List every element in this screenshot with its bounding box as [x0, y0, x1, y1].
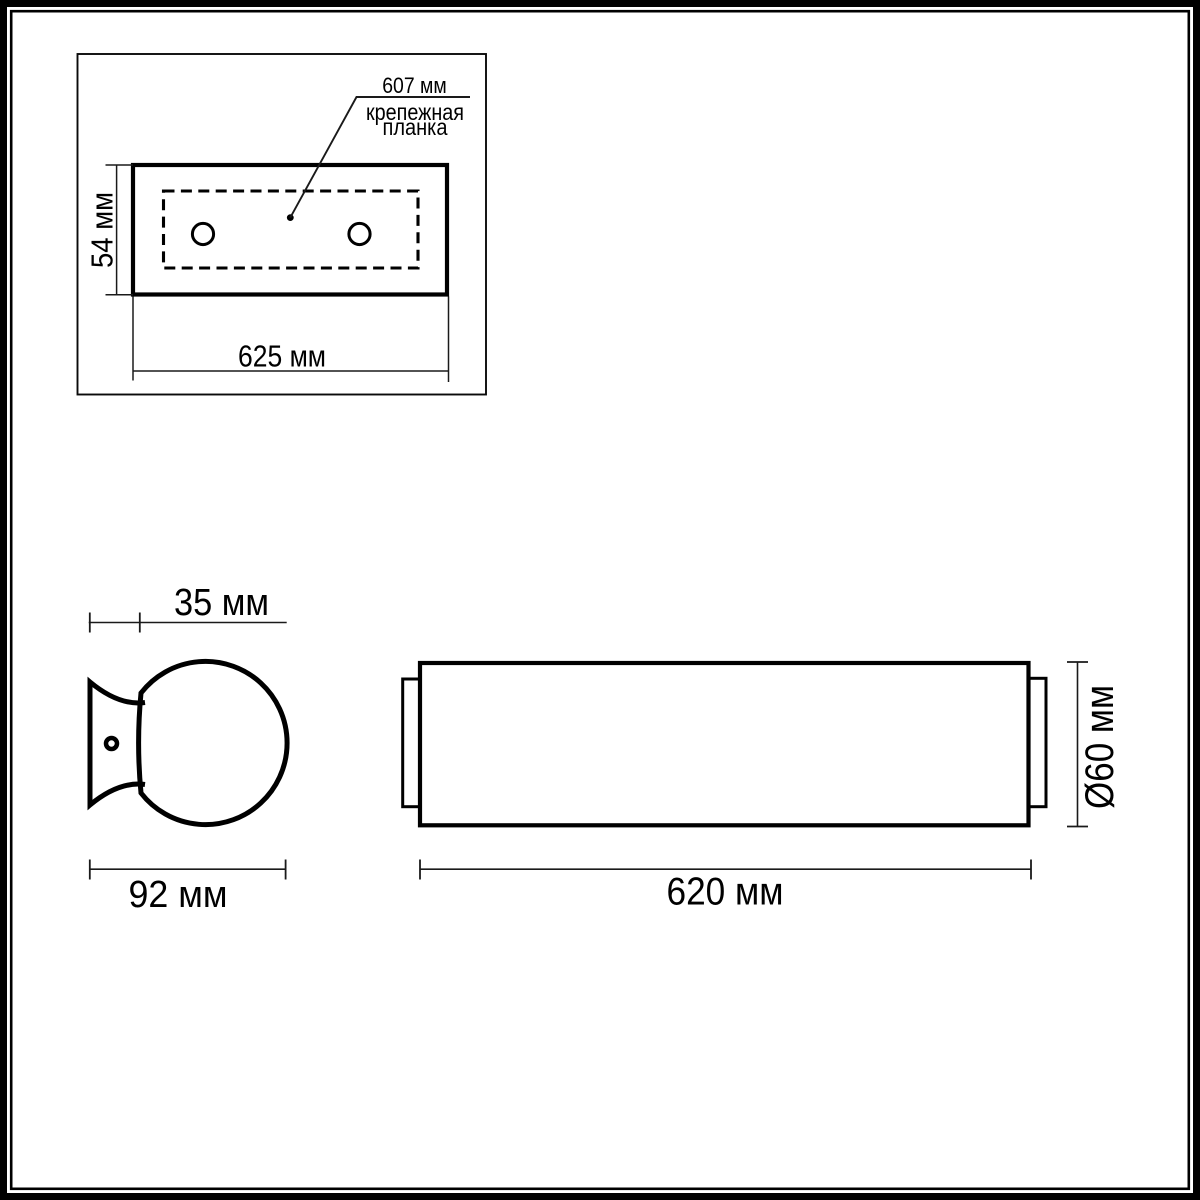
svg-text:планка: планка [383, 114, 448, 140]
svg-text:54 мм: 54 мм [85, 192, 120, 268]
svg-text:607 мм: 607 мм [382, 73, 447, 98]
svg-text:625 мм: 625 мм [238, 339, 326, 374]
svg-text:Ø60 мм: Ø60 мм [1078, 685, 1122, 809]
svg-text:620 мм: 620 мм [667, 871, 784, 914]
svg-text:35 мм: 35 мм [174, 582, 269, 624]
svg-text:92 мм: 92 мм [129, 874, 228, 916]
